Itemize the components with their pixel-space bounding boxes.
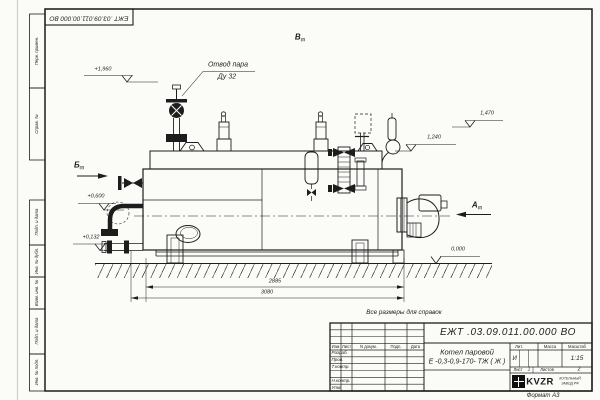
view-label-a: А(2) xyxy=(472,202,482,211)
lifting-lug-1 xyxy=(180,143,204,152)
value-scale: 1:15 xyxy=(571,355,584,362)
product-name-line2: Е -0,3-0,9-170- ТЖ ( Ж ) xyxy=(429,358,506,365)
rear-support xyxy=(352,240,368,263)
col-header-data: Дата xyxy=(411,345,420,349)
product-name-line1: Котел паровой xyxy=(440,348,494,356)
sheet-label: Лист xyxy=(513,368,522,372)
drawing-sheet: ЕЖТ .03.09.011.00.000 ВО Перв. примен. С… xyxy=(0,0,600,400)
elevation-0000: 0,000 xyxy=(451,247,465,253)
top-corner-stamp: ЕЖТ .03.09.011.00.000 ВО xyxy=(49,14,128,21)
burner xyxy=(397,195,447,238)
level-gauge-group xyxy=(305,147,366,201)
side-label-sprav-no: Справ. № xyxy=(35,114,39,134)
kvzr-logo-text: KVZR xyxy=(526,377,553,387)
value-lit: И xyxy=(513,356,517,362)
front-support xyxy=(167,235,183,263)
side-label-vzam-inv: Взам. инв. № xyxy=(35,280,39,307)
safety-valve-1 xyxy=(217,112,231,151)
view-label-b: Б(2) xyxy=(74,162,84,171)
logo-subtext-2: ЗАВОД РФ xyxy=(561,382,578,385)
sheets-label: Листов xyxy=(540,368,554,372)
front-wall-fittings xyxy=(101,176,143,254)
elevation-1960: +1,960 xyxy=(95,67,112,73)
sheet-number: 1 xyxy=(528,368,531,373)
elevation-1240: 1,240 xyxy=(427,135,441,141)
side-label-inv-dubl: Инв. № дубл. xyxy=(35,248,39,274)
feed-elbow-pipe xyxy=(110,206,143,229)
header-lit: Лит. xyxy=(515,345,523,349)
col-header-izm: Изм xyxy=(332,345,340,349)
callout-steam-outlet: Отвод пара xyxy=(208,62,248,69)
dimension-3080: 3080 xyxy=(261,290,273,296)
ground-hatching xyxy=(95,264,492,278)
row-label-prov: Пров. xyxy=(332,358,344,363)
side-label-podp-data-1: Подп. и дата xyxy=(35,209,39,236)
burner-motor xyxy=(419,195,441,211)
col-header-list: Лист xyxy=(342,345,351,349)
dimension-2885: 2885 xyxy=(269,279,281,285)
elevation-0132: +0,132 xyxy=(83,235,100,241)
side-label-inv-podl: Инв. № подл. xyxy=(35,359,39,386)
elevation-1470: 1,470 xyxy=(480,111,494,117)
callout-steam-outlet-dn: Ду 32 xyxy=(218,74,236,81)
side-label-podp-data-2: Подп. и дата xyxy=(35,318,39,345)
col-header-podp: Подп. xyxy=(390,345,401,349)
reference-note: Все размеры для справок xyxy=(366,310,441,316)
view-label-v: В(2) xyxy=(295,34,305,43)
logo-subtext-1: КОТЕЛЬНЫЙ xyxy=(559,377,580,380)
boiler-shell xyxy=(134,151,450,263)
steam-outlet-valve xyxy=(166,72,255,152)
row-label-razrab: Разраб. xyxy=(332,351,348,356)
header-mass: Масса xyxy=(544,345,556,349)
boiler-general-view-drawing xyxy=(0,0,600,400)
elevation-0600: +0,600 xyxy=(88,194,105,200)
callout-leader xyxy=(182,72,203,97)
row-label-nkontr: Н.контр. xyxy=(332,378,351,383)
sheets-number: 2 xyxy=(578,368,581,373)
row-label-tkontr: Т.контр. xyxy=(332,365,350,370)
row-label-utv: Утв. xyxy=(332,385,342,390)
header-scale: Масштаб xyxy=(568,345,586,349)
col-header-doc: N докум. xyxy=(360,345,377,349)
doc-number: ЕЖТ .03.09.011.00.000 ВО xyxy=(440,328,576,338)
pressure-gauge xyxy=(382,113,400,166)
kvzr-logo-icon xyxy=(512,375,525,388)
manhole xyxy=(176,226,200,243)
format-note: Формат А3 xyxy=(527,393,560,399)
safety-valve-2 xyxy=(314,112,328,151)
side-label-perv-primen: Перв. примен. xyxy=(35,37,39,66)
